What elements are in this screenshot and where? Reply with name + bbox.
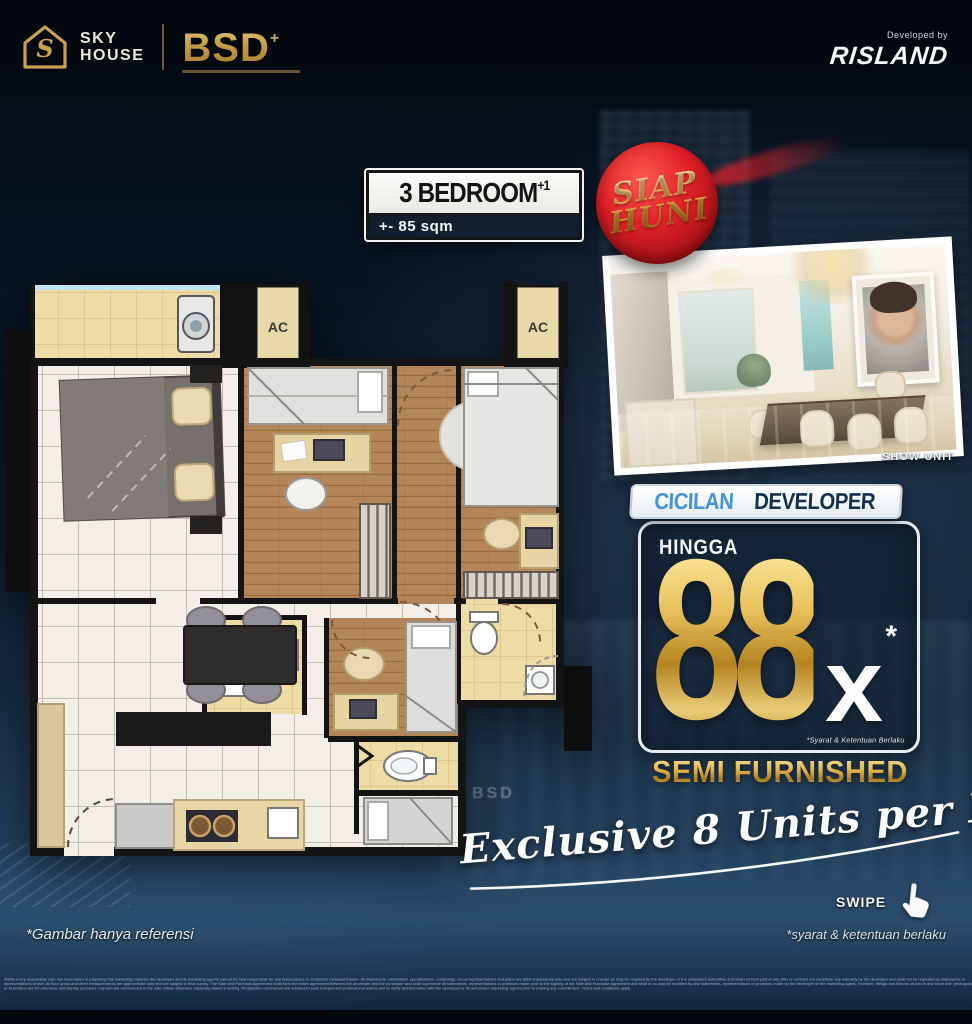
svg-text:AC: AC xyxy=(268,319,288,335)
legal-fine-print: Whilst every reasonable care has been ta… xyxy=(4,977,972,991)
svg-text:S: S xyxy=(36,34,53,63)
show-unit-caption: SHOW UNIT xyxy=(858,451,954,463)
unit-type-label: 3 BEDROOM+1 +- 85 sqm xyxy=(364,168,584,242)
installment-header: CICILAN DEVELOPER xyxy=(629,484,903,519)
brand-name: SKY HOUSE xyxy=(80,30,144,64)
sky-house-icon: S xyxy=(22,25,68,69)
swipe-control[interactable]: SWIPE xyxy=(836,880,938,924)
installment-word-1: CICILAN xyxy=(654,488,734,515)
installment-word-2: DEVELOPER xyxy=(753,488,875,515)
poster: BSD S SKY HOUSE BSD+ Developed by RISLAN… xyxy=(0,0,972,1024)
brand-bsd: BSD+ xyxy=(182,20,300,73)
svg-text:AC: AC xyxy=(528,319,548,335)
installments-value: 88 xyxy=(651,540,813,740)
unit-area: +- 85 sqm xyxy=(366,213,582,240)
developer-block: Developed by RISLAND xyxy=(830,30,948,71)
installments-asterisk: * xyxy=(885,620,897,654)
installments-times: x xyxy=(825,636,883,736)
brand-logo: S SKY HOUSE BSD+ xyxy=(22,20,300,73)
show-unit-photo xyxy=(602,236,964,475)
developed-by-label: Developed by xyxy=(830,30,948,40)
floor-plan: AC AC xyxy=(6,266,606,880)
brand-tagline-bar xyxy=(182,70,300,73)
installment-offer-box: HINGGA 88 x * *Syarat & Ketentuan Berlak… xyxy=(638,521,920,753)
siap-huni-badge: SIAP HUNI xyxy=(596,142,718,264)
show-unit-interior xyxy=(610,244,957,468)
footnote-image-reference: *Gambar hanya referensi xyxy=(26,926,194,943)
logo-divider xyxy=(162,24,164,70)
swipe-label: SWIPE xyxy=(836,894,886,910)
siap-huni-text: SIAP HUNI xyxy=(603,168,710,239)
developer-name: RISLAND xyxy=(828,42,949,71)
swipe-hand-icon xyxy=(892,878,940,926)
interior-plant xyxy=(736,353,771,388)
offer-terms-note: *Syarat & Ketentuan Berlaku xyxy=(807,736,905,744)
unit-type: 3 BEDROOM+1 xyxy=(366,170,582,213)
wall-portrait xyxy=(851,271,939,386)
bottom-black-strip xyxy=(0,1010,972,1024)
furnishing-label: SEMI FURNISHED xyxy=(618,754,941,790)
footnote-terms: *syarat & ketentuan berlaku xyxy=(786,927,946,942)
